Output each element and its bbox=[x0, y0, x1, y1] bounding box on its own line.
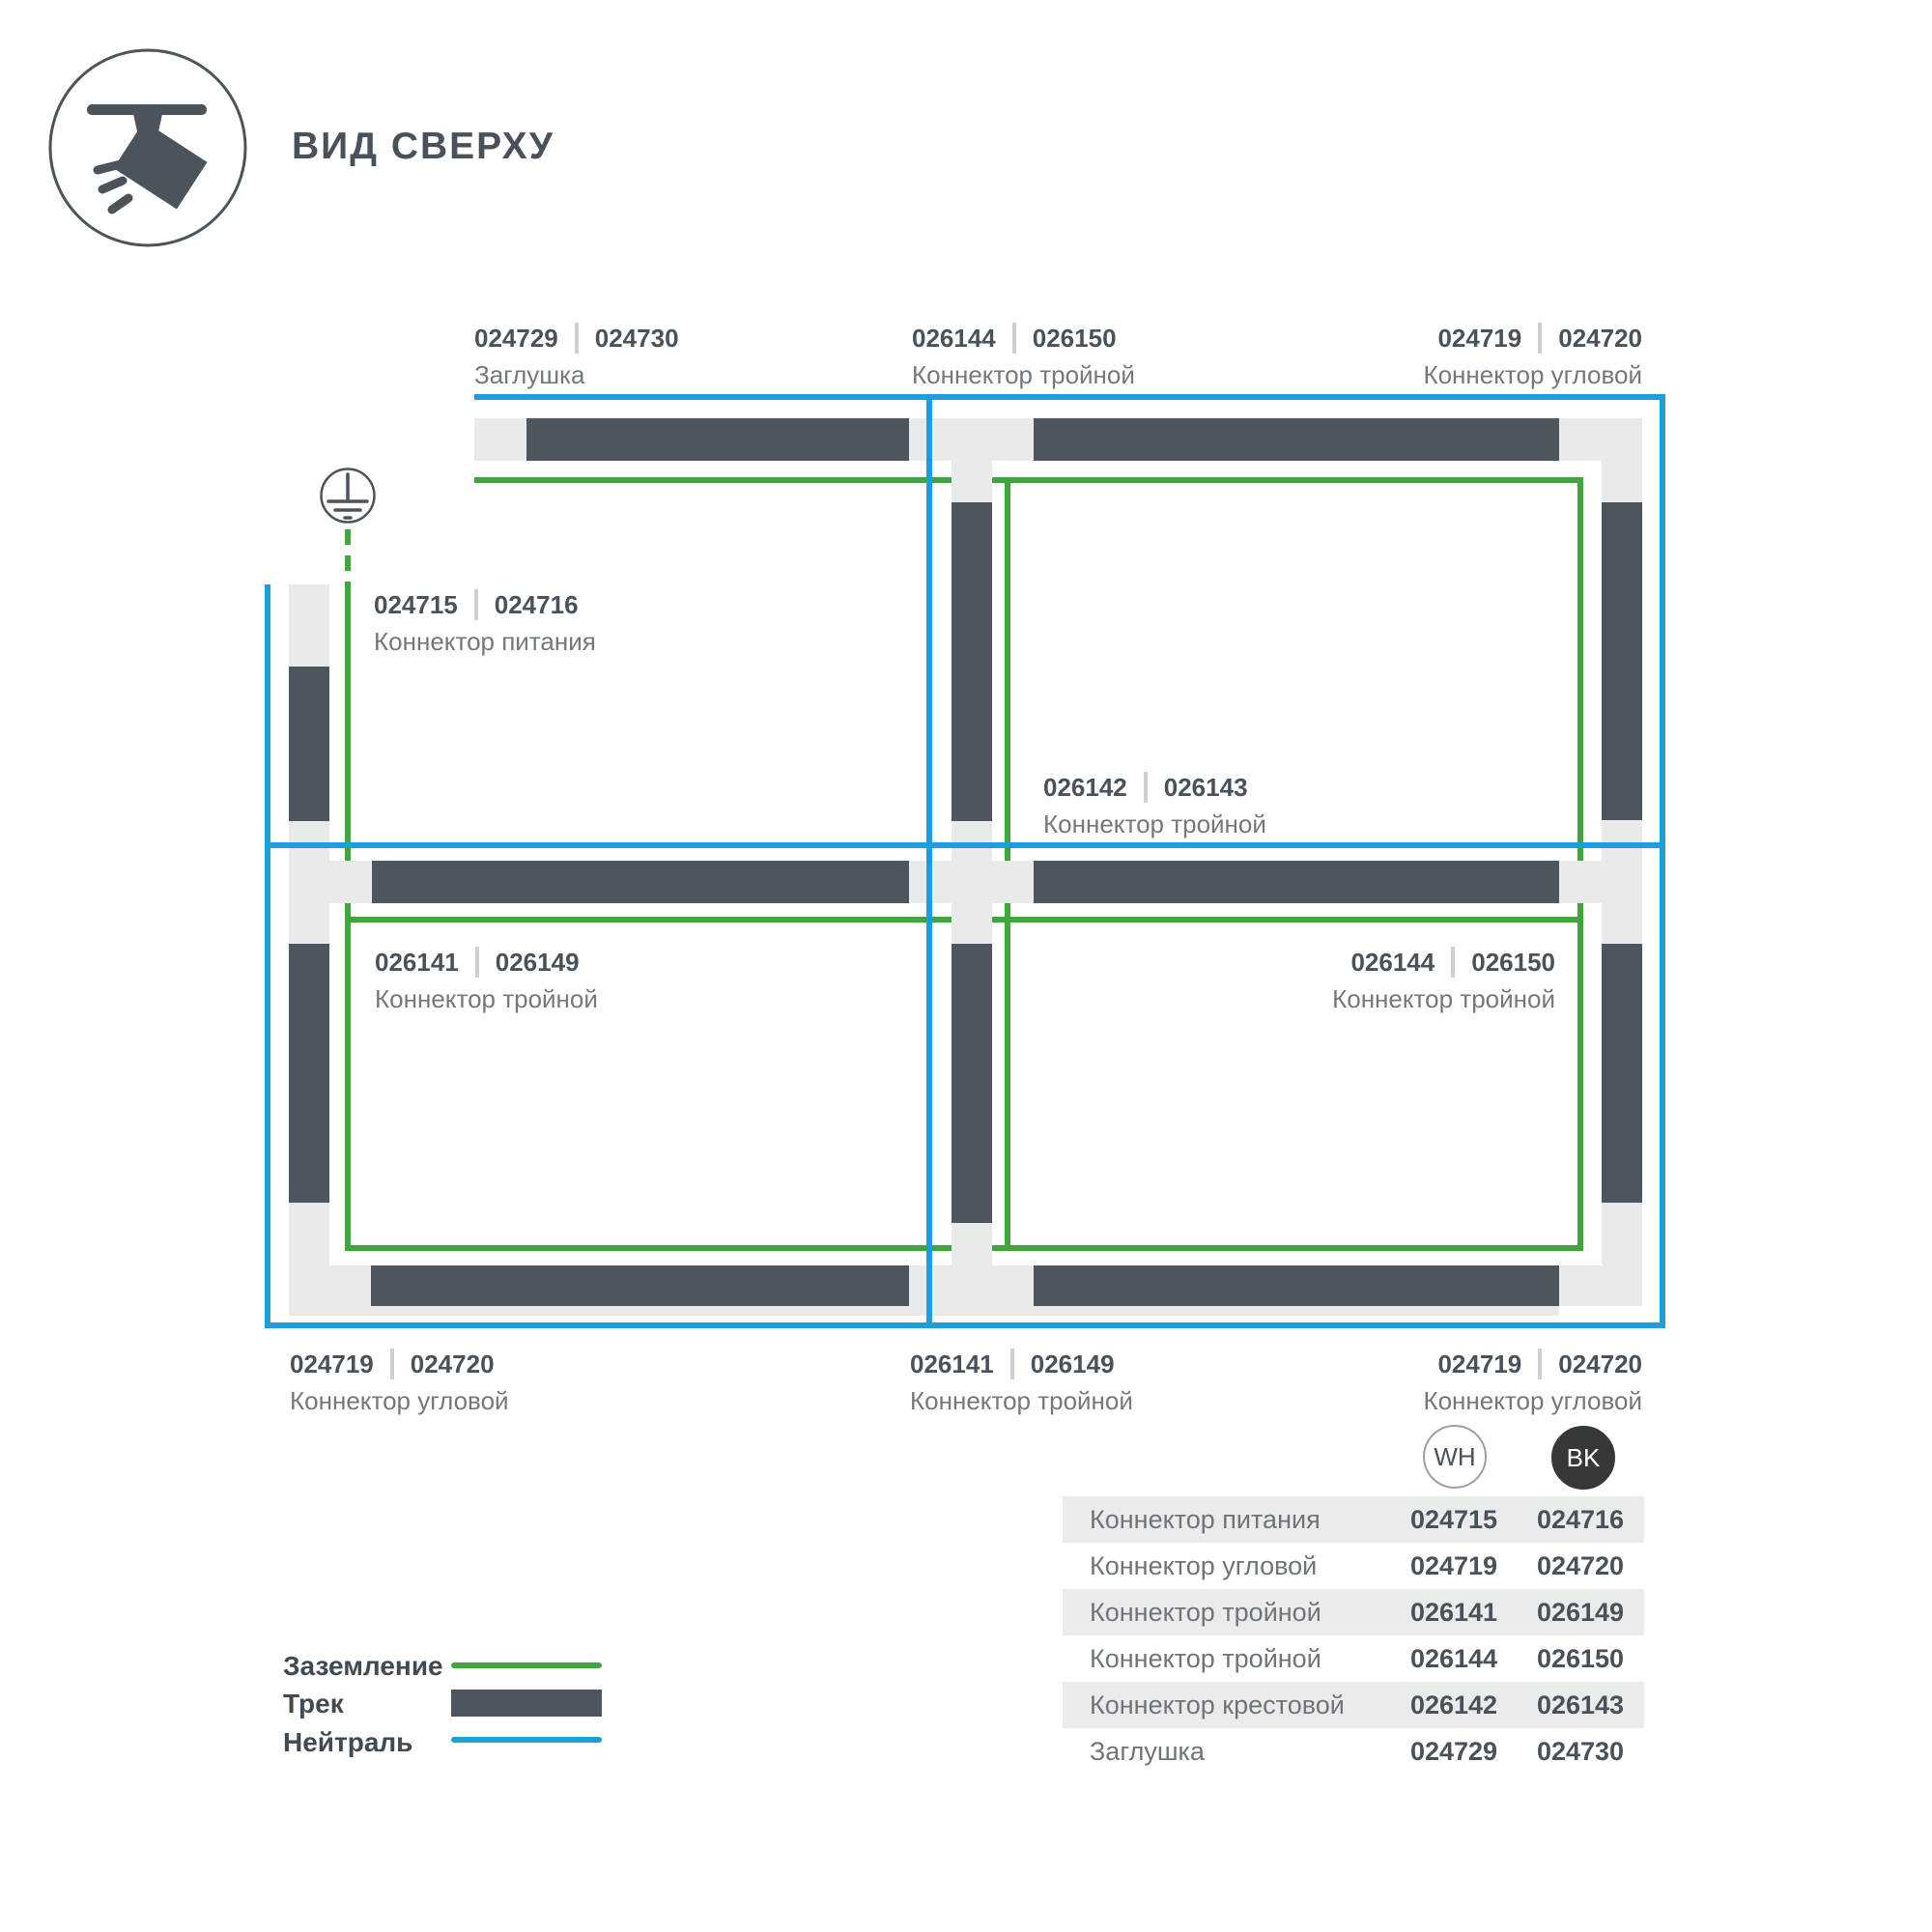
ground-wire-left bbox=[345, 582, 351, 1251]
table-row: Коннектор крестовой 026142 026143 bbox=[1063, 1682, 1644, 1728]
track-segment bbox=[372, 861, 909, 903]
track-segment bbox=[289, 944, 329, 1203]
track-segment bbox=[1034, 1265, 1559, 1306]
neutral-wire-left bbox=[265, 584, 270, 1328]
label-t-connector-right: 026144026150 Коннектор тройной bbox=[1332, 947, 1555, 1011]
label-corner-top-right: 024719024720 Коннектор угловой bbox=[1423, 323, 1642, 387]
track-segment bbox=[952, 944, 992, 1223]
label-corner-bottom-right: 024719024720 Коннектор угловой bbox=[1423, 1349, 1642, 1413]
code-separator bbox=[475, 947, 479, 978]
code-separator bbox=[390, 1349, 394, 1379]
table-row: Коннектор тройной 026141 026149 bbox=[1063, 1589, 1644, 1635]
label-end-cap: 024729024730 Заглушка bbox=[474, 323, 679, 387]
legend-swatch-track-bar bbox=[451, 1690, 602, 1717]
legend-label-ground: Заземление bbox=[283, 1653, 443, 1680]
code-separator bbox=[1538, 323, 1542, 354]
label-t-connector-left: 026141026149 Коннектор тройной bbox=[375, 947, 598, 1011]
neutral-wire-right bbox=[1660, 394, 1665, 1328]
table-row: Коннектор питания 024715 024716 bbox=[1063, 1496, 1644, 1543]
code-separator bbox=[1144, 772, 1148, 803]
label-cross-connector: 026142026143 Коннектор тройной bbox=[1043, 772, 1266, 837]
track-segment bbox=[1602, 944, 1642, 1203]
track-segment bbox=[526, 418, 909, 461]
label-t-connector-top: 026144026150 Коннектор тройной bbox=[912, 323, 1135, 387]
code-separator bbox=[1538, 1349, 1542, 1379]
code-separator bbox=[1451, 947, 1455, 978]
neutral-wire-middle bbox=[268, 842, 1665, 848]
track-segment bbox=[1034, 861, 1559, 903]
track-segment bbox=[952, 502, 992, 821]
variant-badge-black: BK bbox=[1551, 1426, 1615, 1490]
label-corner-bottom-left: 024719024720 Коннектор угловой bbox=[290, 1349, 509, 1413]
code-separator bbox=[1010, 1349, 1014, 1379]
table-row: Коннектор тройной 026144 026150 bbox=[1063, 1635, 1644, 1682]
parts-table: Коннектор питания 024715 024716 Коннекто… bbox=[1063, 1496, 1644, 1775]
code-separator bbox=[1012, 323, 1016, 354]
ground-earth-icon bbox=[319, 467, 377, 525]
code-separator bbox=[575, 323, 579, 354]
legend-swatch-neutral-line bbox=[451, 1737, 602, 1743]
ground-wire-feed-dashed bbox=[345, 529, 351, 582]
track-segment bbox=[1602, 502, 1642, 820]
ground-wire-top bbox=[474, 477, 1583, 483]
label-power-connector: 024715024716 Коннектор питания bbox=[374, 589, 596, 654]
legend-label-track: Трек bbox=[283, 1690, 344, 1718]
legend-swatch-ground-line bbox=[451, 1662, 602, 1668]
neutral-wire-bottom bbox=[268, 1322, 1665, 1328]
track-row-bottom-lip bbox=[289, 1306, 1559, 1316]
table-row: Заглушка 024729 024730 bbox=[1063, 1728, 1644, 1775]
neutral-wire-center bbox=[926, 394, 932, 1328]
track-segment bbox=[1034, 418, 1559, 461]
variant-badge-white: WH bbox=[1423, 1425, 1487, 1489]
label-t-connector-bottom: 026141026149 Коннектор тройной bbox=[910, 1349, 1133, 1413]
neutral-wire-top bbox=[474, 394, 1665, 400]
track-segment bbox=[289, 667, 329, 821]
track-segment bbox=[371, 1265, 909, 1306]
legend-label-neutral: Нейтраль bbox=[283, 1729, 412, 1756]
code-separator bbox=[474, 589, 478, 620]
table-row: Коннектор угловой 024719 024720 bbox=[1063, 1543, 1644, 1589]
top-view-sheet: ВИД СВЕРХУ bbox=[0, 0, 1932, 1932]
